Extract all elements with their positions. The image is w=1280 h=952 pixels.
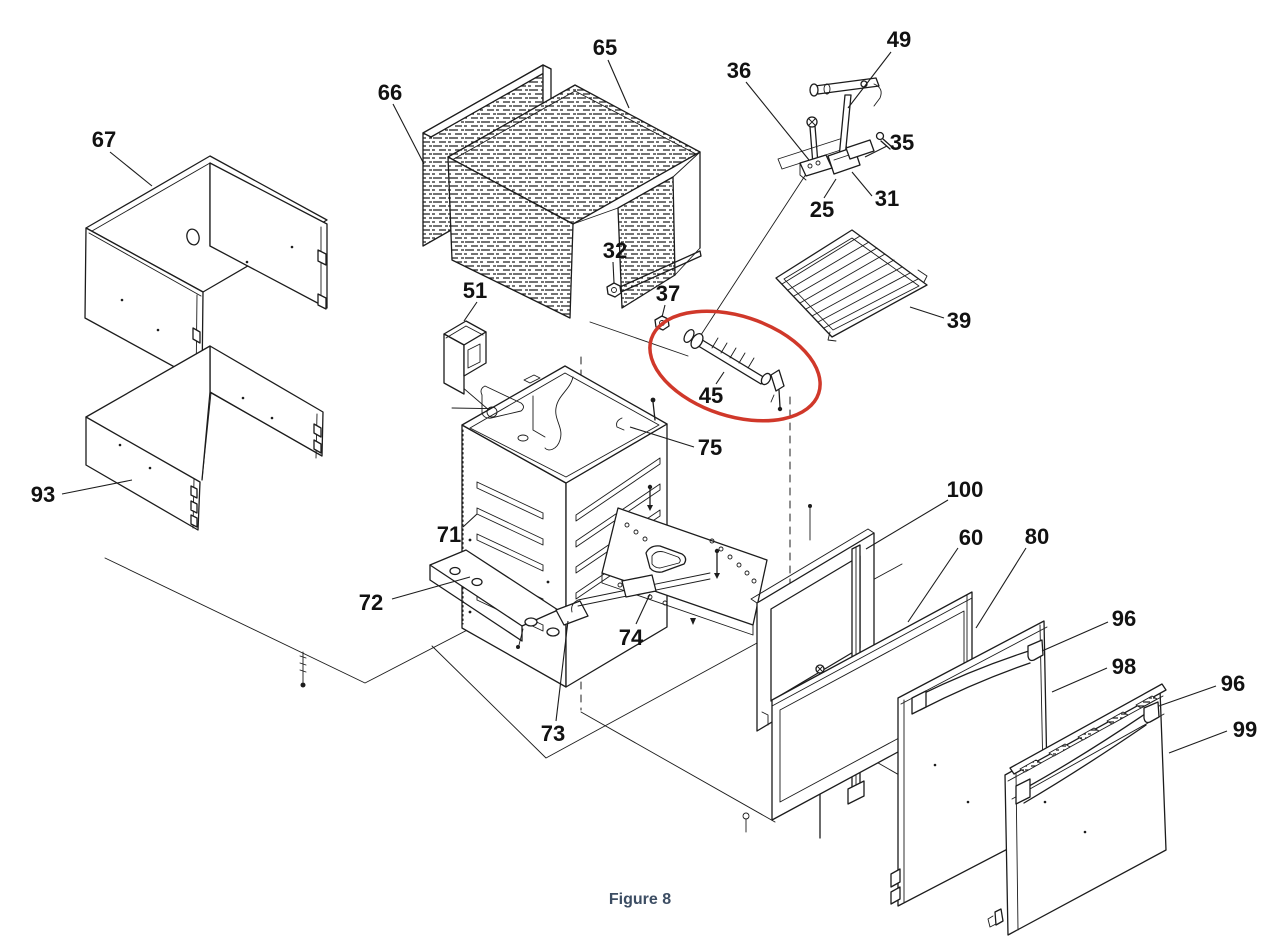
diagram-drawing: 6766654936353125325137394575717273749310… — [0, 0, 1280, 952]
leader-line-51 — [464, 302, 477, 321]
part-label-39: 39 — [947, 308, 971, 333]
part-51-bracket — [444, 321, 510, 409]
leader-line-80 — [976, 548, 1026, 628]
part-label-36: 36 — [727, 58, 751, 83]
part-label-45: 45 — [699, 383, 723, 408]
part-35-screw-plate — [846, 140, 874, 159]
part-39-oven-rack — [776, 230, 927, 341]
part-label-71: 71 — [437, 522, 461, 547]
part-label-74: 74 — [619, 625, 644, 650]
part-label-66: 66 — [378, 80, 402, 105]
part-label-93: 93 — [31, 482, 55, 507]
part-label-73: 73 — [541, 721, 565, 746]
leader-line-32 — [613, 262, 614, 283]
part-49-valve-assembly — [778, 78, 892, 180]
leader-line-93 — [62, 480, 132, 494]
leader-line-36 — [746, 82, 809, 160]
part-label-60: 60 — [959, 525, 983, 550]
part-label-49: 49 — [887, 27, 911, 52]
part-label-100: 100 — [947, 477, 984, 502]
part-label-37: 37 — [656, 281, 680, 306]
part-label-99: 99 — [1233, 717, 1257, 742]
part-label-80: 80 — [1025, 524, 1049, 549]
part-label-67: 67 — [92, 127, 116, 152]
leader-line-37 — [662, 305, 665, 317]
part-label-35: 35 — [890, 130, 914, 155]
part-label-98: 98 — [1112, 654, 1136, 679]
part-label-65: 65 — [593, 35, 617, 60]
part-label-25: 25 — [810, 197, 834, 222]
part-45-burner-tube — [682, 328, 784, 411]
part-label-75: 75 — [698, 435, 722, 460]
part-label-72: 72 — [359, 590, 383, 615]
leader-line-96 — [1042, 622, 1108, 651]
part-label-32: 32 — [603, 238, 627, 263]
leader-line-67 — [110, 152, 152, 186]
part-label-96: 96 — [1221, 671, 1245, 696]
leader-line-100 — [866, 500, 948, 549]
leader-line-31 — [852, 172, 872, 196]
leader-line-39 — [910, 307, 944, 318]
part-label-31: 31 — [875, 186, 899, 211]
exploded-parts-diagram: 6766654936353125325137394575717273749310… — [0, 0, 1280, 952]
leader-line-25 — [824, 179, 836, 198]
leader-line-99 — [1169, 731, 1227, 753]
leader-line-96 — [1159, 686, 1216, 706]
leader-line-65 — [608, 60, 629, 108]
leader-line-98 — [1052, 668, 1107, 692]
part-label-96: 96 — [1112, 606, 1136, 631]
leader-line-66 — [393, 104, 424, 164]
part-label-51: 51 — [463, 278, 487, 303]
part-93-wrapper-lower — [86, 346, 323, 530]
leader-line-49 — [848, 52, 891, 108]
figure-caption: Figure 8 — [575, 891, 705, 909]
